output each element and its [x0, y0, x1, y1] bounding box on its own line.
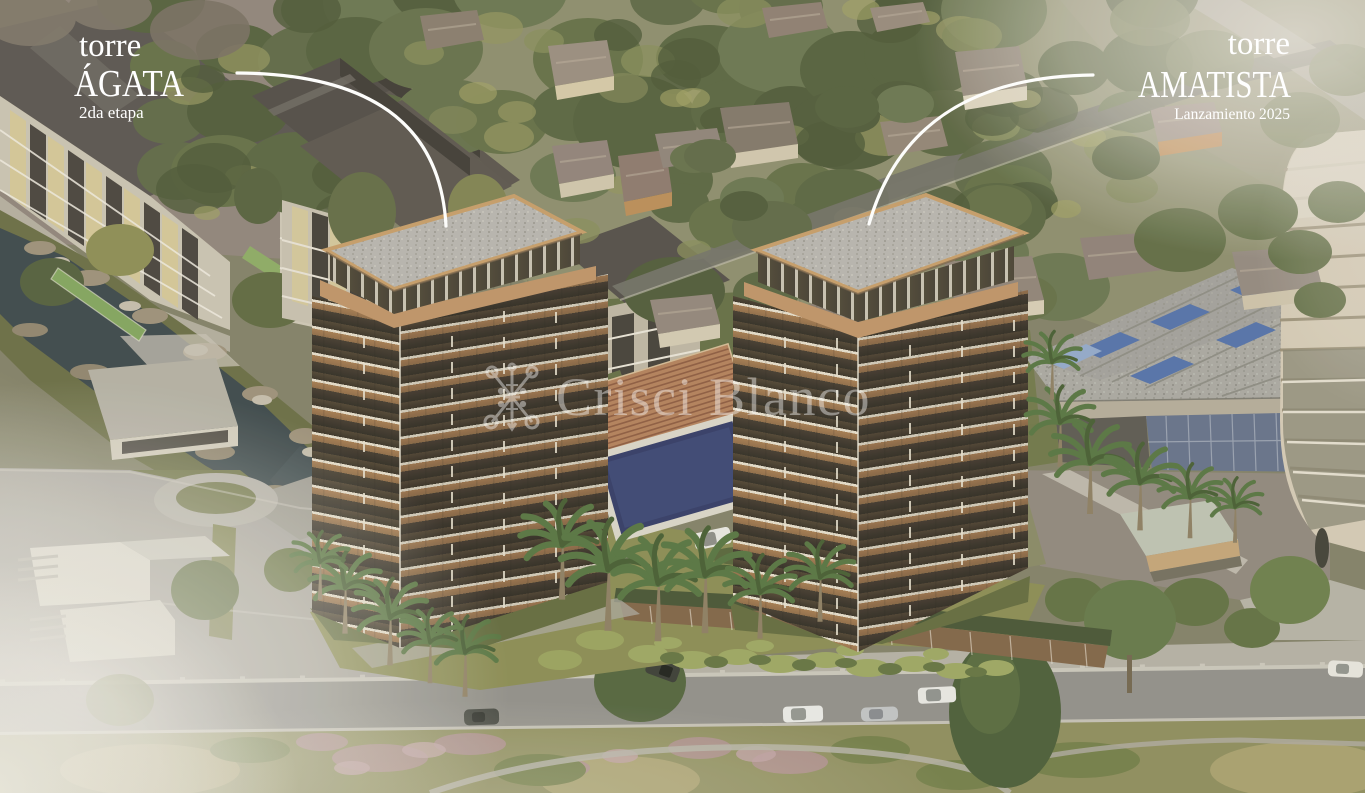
svg-text:Lanzamiento 2025: Lanzamiento 2025: [1174, 106, 1290, 123]
svg-text:AMATISTA: AMATISTA: [1138, 64, 1291, 106]
svg-text:Crisci Blanco: Crisci Blanco: [556, 367, 871, 427]
svg-text:torre: torre: [1228, 26, 1290, 62]
svg-text:ÁGATA: ÁGATA: [74, 63, 184, 105]
svg-text:torre: torre: [79, 28, 141, 64]
svg-text:2da etapa: 2da etapa: [79, 103, 144, 122]
